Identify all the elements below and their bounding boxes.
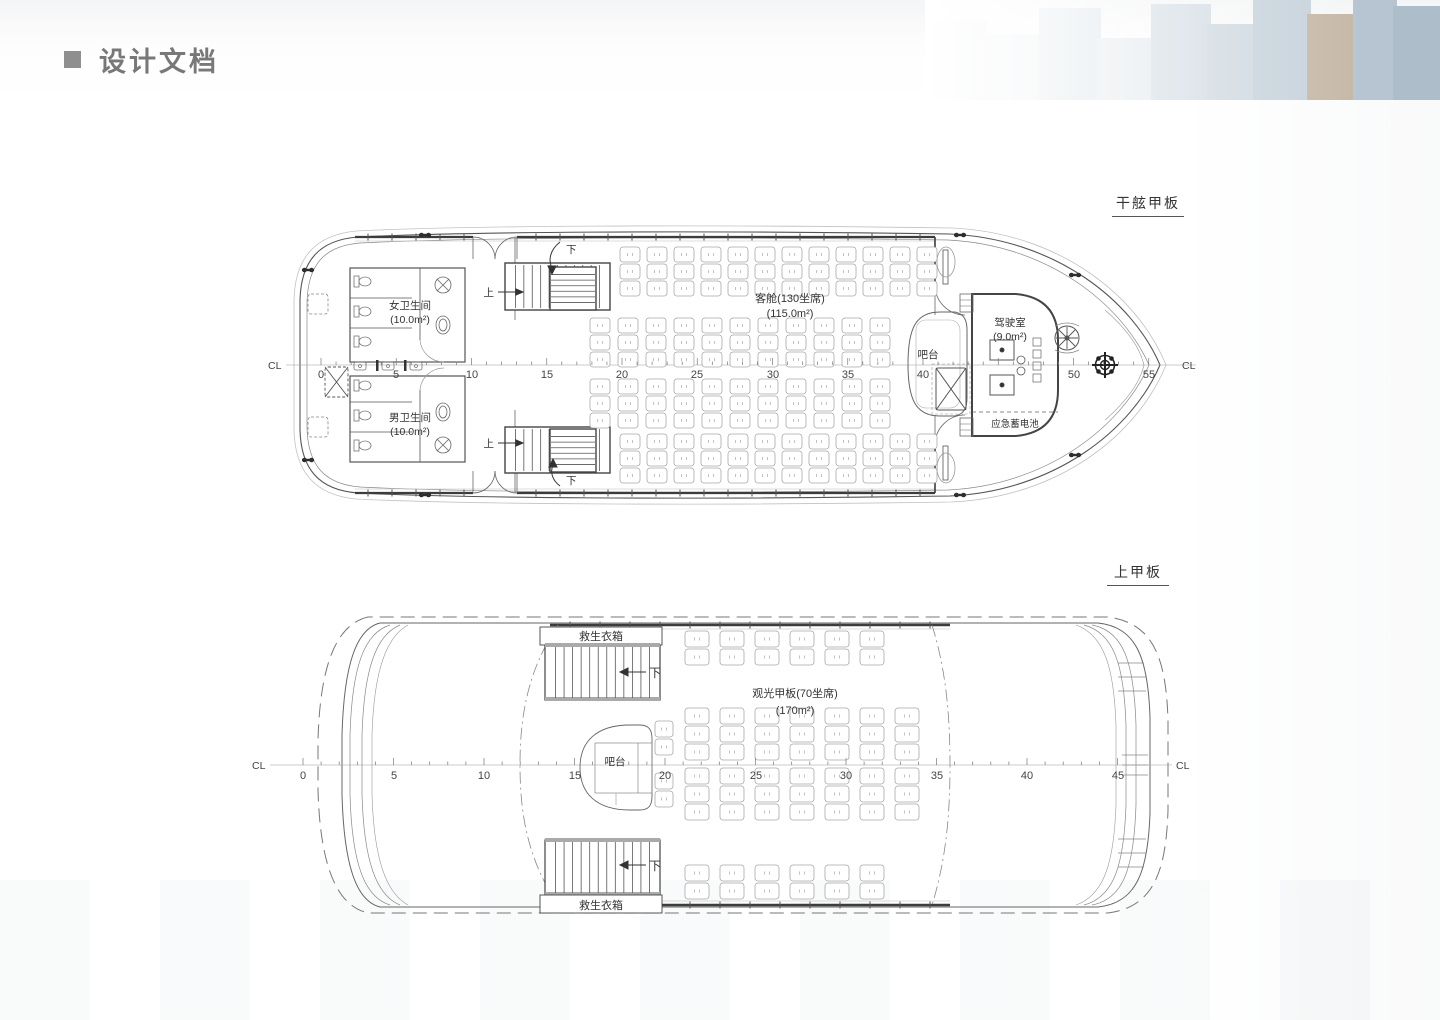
seat xyxy=(728,468,748,483)
seat xyxy=(720,804,744,820)
ruler-number: 15 xyxy=(541,369,553,381)
seat xyxy=(618,352,638,367)
page-title: 设计文档 xyxy=(99,40,219,79)
toilet-icon xyxy=(354,380,371,391)
seat xyxy=(646,396,666,411)
seat xyxy=(730,335,750,350)
seat xyxy=(786,335,806,350)
seat xyxy=(890,247,910,262)
seat xyxy=(755,451,775,466)
seat xyxy=(685,708,709,724)
seat xyxy=(786,413,806,428)
ruler-number: 30 xyxy=(767,369,779,381)
ruler-number: 55 xyxy=(1143,369,1155,381)
seat xyxy=(590,318,610,333)
ruler-numbers: 0 5 10 15 20 25 30 35 40 45 xyxy=(300,770,1124,782)
seat xyxy=(842,413,862,428)
seat xyxy=(814,413,834,428)
centerline-label: CL xyxy=(252,760,266,772)
seat xyxy=(755,786,779,802)
centerline-label: CL xyxy=(1176,760,1190,772)
cleat-icon xyxy=(302,458,314,463)
seat xyxy=(870,318,890,333)
seat xyxy=(825,631,849,647)
seat xyxy=(860,865,884,881)
women-wc-area: (10.0m²) xyxy=(390,314,430,326)
centerline-label: CL xyxy=(268,360,282,372)
seat xyxy=(674,335,694,350)
seat xyxy=(786,318,806,333)
seat xyxy=(863,451,883,466)
bar-label: 吧台 xyxy=(605,755,626,768)
seat xyxy=(836,434,856,449)
seat xyxy=(620,468,640,483)
seat xyxy=(782,264,802,279)
seat xyxy=(814,335,834,350)
seat xyxy=(647,434,667,449)
seat xyxy=(825,865,849,881)
seat xyxy=(782,468,802,483)
stair-down-label: 下 xyxy=(649,859,661,873)
deck-label: 观光甲板(70坐席) xyxy=(752,686,838,700)
seat xyxy=(842,396,862,411)
seat xyxy=(720,744,744,760)
seat xyxy=(890,468,910,483)
seat xyxy=(870,396,890,411)
wheelhouse-area-label: (9.0m²) xyxy=(993,331,1027,343)
seat xyxy=(728,451,748,466)
seat xyxy=(620,434,640,449)
bar-counter xyxy=(908,312,970,416)
seat xyxy=(655,791,673,807)
seat xyxy=(890,434,910,449)
cleat-icon xyxy=(954,493,966,498)
seat xyxy=(860,744,884,760)
wheelhouse-label: 驾驶室 xyxy=(994,316,1026,329)
seat xyxy=(790,744,814,760)
seat xyxy=(825,744,849,760)
seat xyxy=(674,434,694,449)
seat xyxy=(790,768,814,784)
seat xyxy=(755,883,779,899)
seat xyxy=(646,352,666,367)
seat xyxy=(863,281,883,296)
seat xyxy=(730,396,750,411)
ruler-number: 5 xyxy=(393,369,399,381)
seat xyxy=(685,726,709,742)
seat xyxy=(755,865,779,881)
battery-label: 应急蓄电池 xyxy=(991,418,1039,430)
seat xyxy=(685,744,709,760)
seat xyxy=(647,281,667,296)
seat xyxy=(702,413,722,428)
seat xyxy=(590,379,610,394)
seat xyxy=(825,786,849,802)
seat xyxy=(860,631,884,647)
men-wc-area: (10.0m²) xyxy=(390,426,430,438)
seat xyxy=(702,318,722,333)
ruler-number: 35 xyxy=(931,770,943,782)
cleat-icon xyxy=(1069,453,1081,458)
ruler-number: 10 xyxy=(466,369,478,381)
toilet-icon xyxy=(354,440,371,451)
seat xyxy=(790,631,814,647)
stern-hatch xyxy=(308,294,348,437)
seat xyxy=(790,804,814,820)
seat xyxy=(809,468,829,483)
ruler-number: 5 xyxy=(391,770,397,782)
ruler-number: 0 xyxy=(300,770,306,782)
seat xyxy=(863,434,883,449)
seat xyxy=(647,451,667,466)
seat xyxy=(646,335,666,350)
freeboard-deck-plan: 女卫生间 (10.0m²) 男卫生间 (10.0m²) 上 上 下 下 xyxy=(260,190,1210,520)
seat xyxy=(790,726,814,742)
seat xyxy=(618,335,638,350)
seat xyxy=(790,786,814,802)
seat xyxy=(720,708,744,724)
seat xyxy=(755,468,775,483)
seat xyxy=(755,247,775,262)
seat xyxy=(863,468,883,483)
seat xyxy=(646,379,666,394)
seat xyxy=(786,396,806,411)
ruler-number: 20 xyxy=(659,770,671,782)
ruler-number: 25 xyxy=(750,770,762,782)
seat xyxy=(647,264,667,279)
seat xyxy=(842,318,862,333)
seat xyxy=(720,649,744,665)
seat xyxy=(860,768,884,784)
ruler-number: 35 xyxy=(842,369,854,381)
seat xyxy=(860,649,884,665)
seat xyxy=(860,804,884,820)
seat xyxy=(836,264,856,279)
seat xyxy=(863,264,883,279)
toilet-icon xyxy=(354,276,371,287)
seat xyxy=(860,786,884,802)
stair-down-label: 下 xyxy=(566,475,577,487)
seat xyxy=(728,434,748,449)
seat xyxy=(728,264,748,279)
seat xyxy=(782,451,802,466)
seat xyxy=(728,281,748,296)
cleat-icon xyxy=(302,268,314,273)
seat xyxy=(758,318,778,333)
ruler-number: 20 xyxy=(616,369,628,381)
men-wc-label: 男卫生间 xyxy=(389,411,431,424)
seat xyxy=(895,804,919,820)
seat xyxy=(755,631,779,647)
seat xyxy=(870,352,890,367)
seat xyxy=(809,264,829,279)
stairs xyxy=(540,627,662,913)
seat xyxy=(870,335,890,350)
seat xyxy=(728,247,748,262)
ruler-number: 40 xyxy=(917,369,929,381)
seat xyxy=(620,247,640,262)
seat xyxy=(917,434,937,449)
seat xyxy=(895,726,919,742)
seat xyxy=(755,264,775,279)
ruler-number: 30 xyxy=(840,770,852,782)
seat xyxy=(685,649,709,665)
seat xyxy=(836,451,856,466)
seat xyxy=(814,352,834,367)
seat xyxy=(842,379,862,394)
seat xyxy=(701,264,721,279)
seat xyxy=(890,281,910,296)
seat xyxy=(825,708,849,724)
seat xyxy=(701,247,721,262)
seat xyxy=(870,413,890,428)
ruler-ticks xyxy=(303,758,1118,765)
seat xyxy=(646,318,666,333)
seat xyxy=(730,318,750,333)
seat xyxy=(685,768,709,784)
seat xyxy=(720,865,744,881)
seat xyxy=(917,281,937,296)
seat xyxy=(618,318,638,333)
seat xyxy=(809,434,829,449)
seat xyxy=(755,649,779,665)
lifejacket-box-label: 救生衣箱 xyxy=(579,629,623,643)
seat xyxy=(655,721,673,737)
slide-page: 设计文档 干舷甲板 上甲板 xyxy=(0,0,1440,1020)
seat xyxy=(620,451,640,466)
ruler-number: 50 xyxy=(1068,369,1080,381)
seat xyxy=(758,352,778,367)
toilet-icon xyxy=(354,336,371,347)
seat xyxy=(917,247,937,262)
seat xyxy=(702,335,722,350)
seat xyxy=(618,379,638,394)
seat xyxy=(786,379,806,394)
seat xyxy=(790,865,814,881)
seat xyxy=(685,883,709,899)
ruler-number: 40 xyxy=(1021,770,1033,782)
seat xyxy=(895,708,919,724)
seat xyxy=(860,708,884,724)
seat xyxy=(895,744,919,760)
up-arrow xyxy=(498,289,523,446)
seat xyxy=(860,883,884,899)
seat xyxy=(720,786,744,802)
toilet-icon xyxy=(354,410,371,421)
cleat-icon xyxy=(954,233,966,238)
seat xyxy=(590,413,610,428)
cityscape-image xyxy=(925,0,1440,100)
title-bullet-icon xyxy=(64,51,81,68)
seat xyxy=(720,768,744,784)
seat xyxy=(895,786,919,802)
seat xyxy=(842,335,862,350)
seat xyxy=(685,804,709,820)
seat xyxy=(809,247,829,262)
seat xyxy=(755,804,779,820)
seat xyxy=(720,883,744,899)
seat xyxy=(720,631,744,647)
seat xyxy=(836,247,856,262)
stair-down-label: 下 xyxy=(566,244,577,256)
seat xyxy=(685,631,709,647)
seat xyxy=(647,247,667,262)
seat xyxy=(890,451,910,466)
seat xyxy=(701,468,721,483)
seat xyxy=(590,396,610,411)
seat xyxy=(895,768,919,784)
women-wc-label: 女卫生间 xyxy=(389,299,431,312)
seat xyxy=(790,883,814,899)
upper-deck-plan: 救生衣箱 救生衣箱 下 下 吧台 观光甲板(70坐席) (170m²) 0 5 … xyxy=(240,555,1200,935)
seat xyxy=(618,396,638,411)
centerline-label: CL xyxy=(1182,360,1196,372)
seat xyxy=(814,379,834,394)
seat xyxy=(701,434,721,449)
seat xyxy=(730,352,750,367)
lifejacket-box-label: 救生衣箱 xyxy=(579,898,623,912)
seat xyxy=(702,379,722,394)
seat xyxy=(836,281,856,296)
deck-area-label: (170m²) xyxy=(776,705,815,717)
seat xyxy=(702,396,722,411)
cabin-label: 客舱(130坐席) xyxy=(755,291,825,305)
seat xyxy=(825,726,849,742)
seat xyxy=(870,379,890,394)
header: 设计文档 xyxy=(0,0,1440,100)
seat xyxy=(860,726,884,742)
stair-down-label: 下 xyxy=(649,666,661,680)
seat xyxy=(674,451,694,466)
seat xyxy=(674,352,694,367)
seat xyxy=(758,413,778,428)
seat xyxy=(701,281,721,296)
seat xyxy=(701,451,721,466)
seat xyxy=(825,649,849,665)
stair-up-label: 上 xyxy=(484,438,495,450)
seat xyxy=(758,396,778,411)
seat xyxy=(836,468,856,483)
seat xyxy=(917,264,937,279)
seat xyxy=(674,247,694,262)
seat xyxy=(674,281,694,296)
seat xyxy=(655,739,673,755)
seat xyxy=(758,379,778,394)
seat xyxy=(618,413,638,428)
seat xyxy=(814,396,834,411)
bar-label: 吧台 xyxy=(918,348,939,361)
seat xyxy=(890,264,910,279)
stair-up-label: 上 xyxy=(484,287,495,299)
seat xyxy=(755,744,779,760)
seat xyxy=(790,649,814,665)
seat xyxy=(674,318,694,333)
ruler-number: 25 xyxy=(691,369,703,381)
seat xyxy=(782,247,802,262)
ruler-number: 10 xyxy=(478,770,490,782)
seat xyxy=(730,379,750,394)
seat xyxy=(647,468,667,483)
seat xyxy=(758,335,778,350)
seat xyxy=(917,468,937,483)
seat xyxy=(814,318,834,333)
toilet-icon xyxy=(354,306,371,317)
seat xyxy=(786,352,806,367)
cleat-icon xyxy=(1069,273,1081,278)
seat xyxy=(917,451,937,466)
seat xyxy=(674,264,694,279)
seat xyxy=(674,468,694,483)
seat xyxy=(674,379,694,394)
seat xyxy=(590,335,610,350)
seat xyxy=(646,413,666,428)
seat xyxy=(825,883,849,899)
ruler-number: 0 xyxy=(318,369,324,381)
seat xyxy=(842,352,862,367)
seat xyxy=(730,413,750,428)
cabin-area-label: (115.0m²) xyxy=(767,308,814,320)
seat xyxy=(863,247,883,262)
ruler-number: 45 xyxy=(1112,770,1124,782)
seat xyxy=(825,804,849,820)
seat xyxy=(674,396,694,411)
seat xyxy=(620,281,640,296)
seat xyxy=(809,451,829,466)
ruler-number: 15 xyxy=(569,770,581,782)
seat xyxy=(674,413,694,428)
seat xyxy=(685,786,709,802)
seat xyxy=(782,434,802,449)
seat xyxy=(755,726,779,742)
seat xyxy=(685,865,709,881)
seat xyxy=(620,264,640,279)
seat xyxy=(755,434,775,449)
windlass-icon xyxy=(1092,352,1118,378)
seat xyxy=(720,726,744,742)
